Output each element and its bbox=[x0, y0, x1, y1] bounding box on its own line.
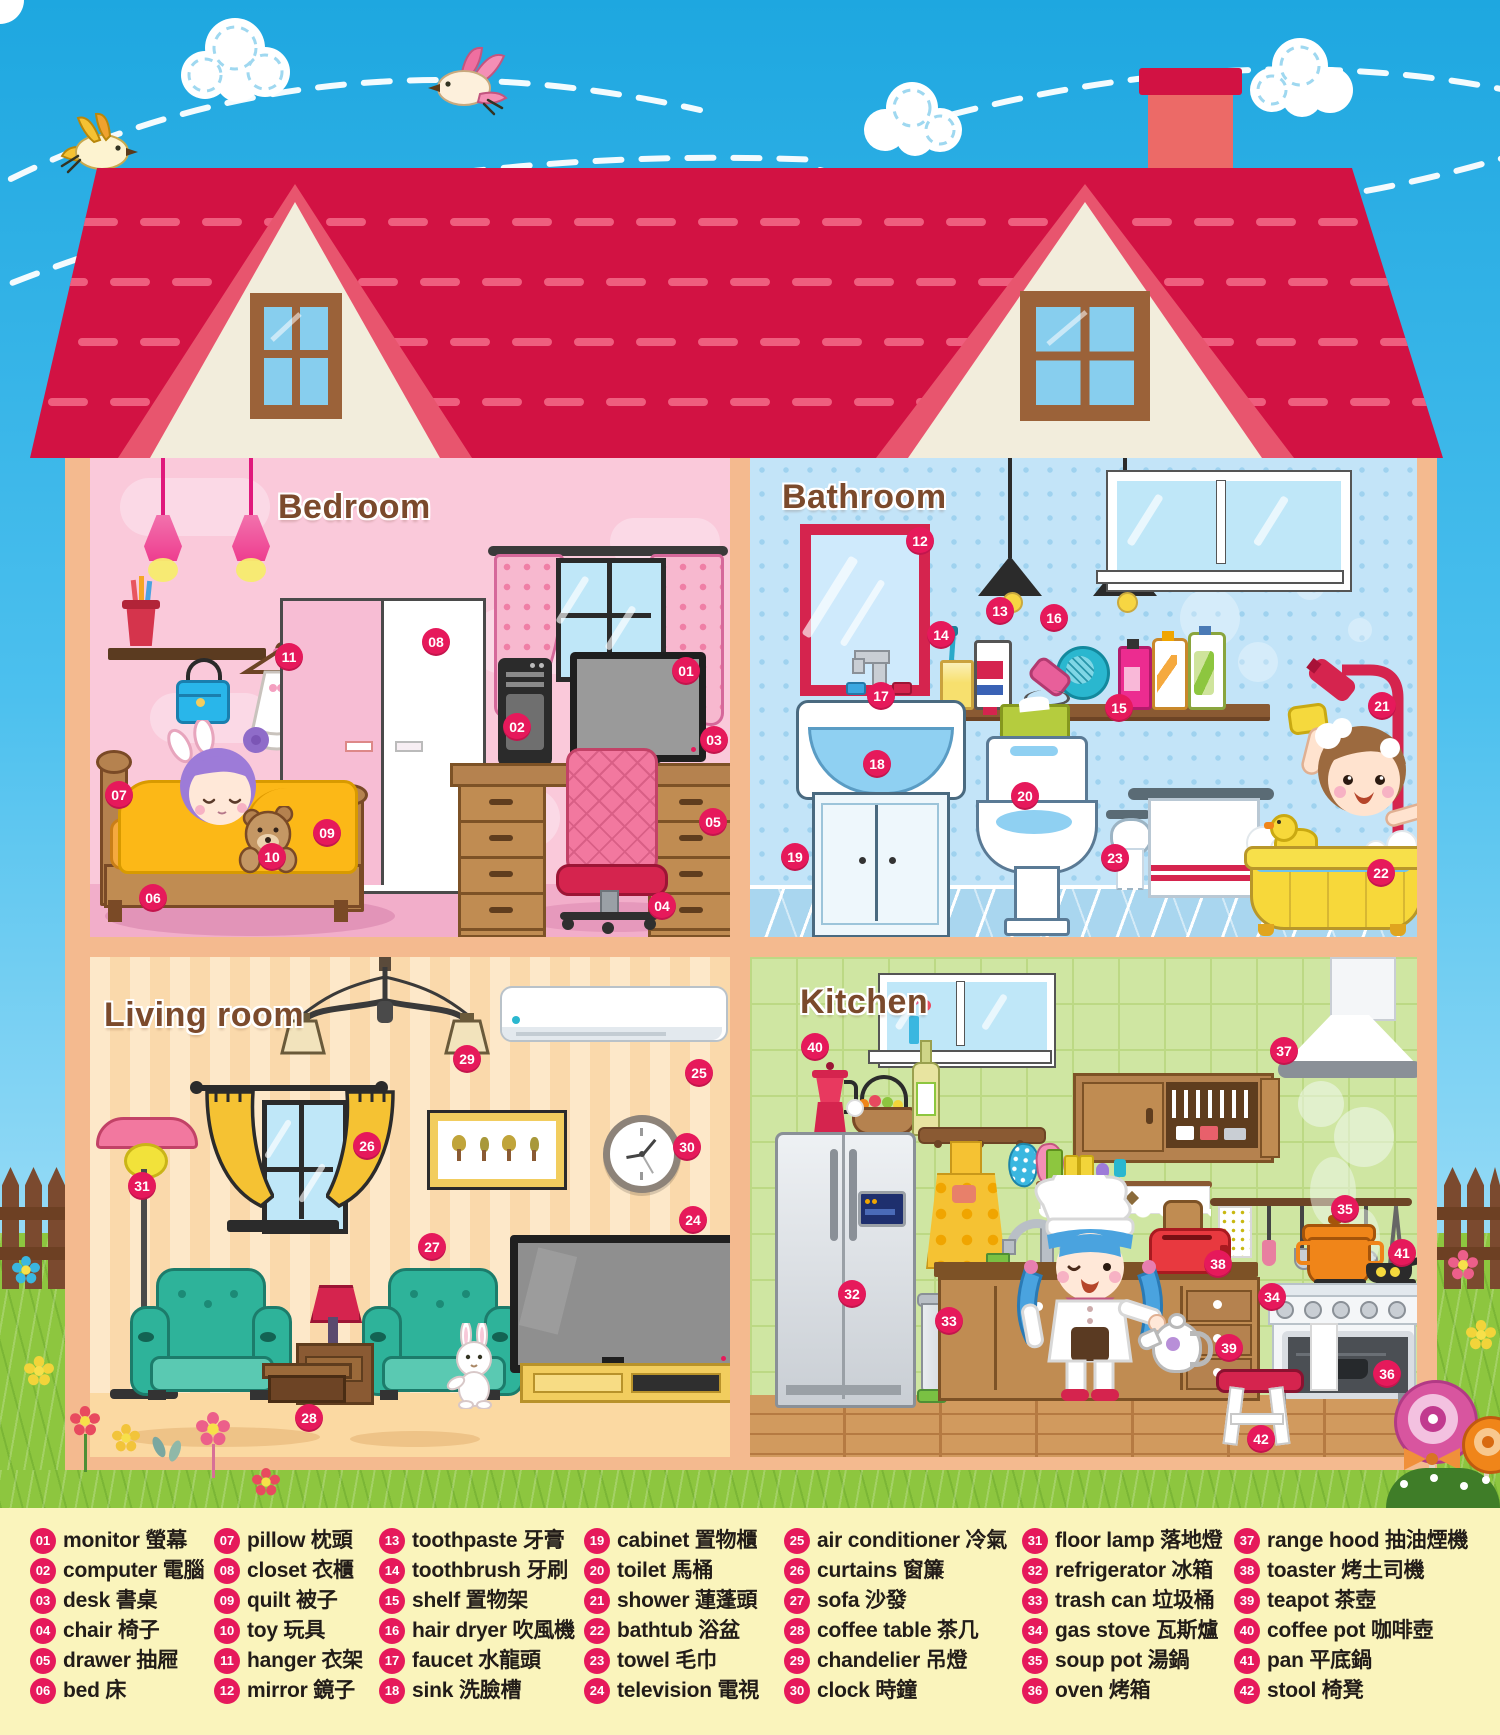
legend-item-31: 31floor lamp 落地燈 bbox=[1022, 1527, 1223, 1555]
legend-item-13: 13toothpaste 牙膏 bbox=[379, 1527, 565, 1555]
legend-item-11: 11hanger 衣架 bbox=[214, 1647, 363, 1675]
legend-number: 11 bbox=[214, 1648, 240, 1674]
bedroom-title: Bedroom bbox=[278, 488, 431, 527]
legend-item-07: 07pillow 枕頭 bbox=[214, 1527, 353, 1555]
legend-label: sink 洗臉槽 bbox=[412, 1679, 521, 1702]
legend-label: floor lamp 落地燈 bbox=[1055, 1529, 1223, 1552]
television bbox=[510, 1235, 730, 1373]
legend-item-01: 01monitor 螢幕 bbox=[30, 1527, 187, 1555]
legend-label: toilet 馬桶 bbox=[617, 1559, 713, 1582]
legend-item-32: 32refrigerator 冰箱 bbox=[1022, 1557, 1213, 1585]
legend-number: 10 bbox=[214, 1618, 240, 1644]
leaf-sprig bbox=[148, 1432, 188, 1472]
living-window-sill bbox=[227, 1220, 339, 1232]
legend-label: air conditioner 冷氣 bbox=[817, 1529, 1007, 1552]
spatula bbox=[1262, 1206, 1276, 1270]
legend-label: hanger 衣架 bbox=[247, 1649, 363, 1672]
legend-number: 20 bbox=[584, 1558, 610, 1584]
legend-number: 14 bbox=[379, 1558, 405, 1584]
legend-item-29: 29chandelier 吊燈 bbox=[784, 1647, 967, 1675]
legend-number: 35 bbox=[1022, 1648, 1048, 1674]
legend-number: 12 bbox=[214, 1678, 240, 1704]
room-bedroom bbox=[90, 458, 730, 937]
legend-label: chandelier 吊燈 bbox=[817, 1649, 967, 1672]
picture-frame bbox=[430, 1113, 564, 1187]
legend-item-20: 20toilet 馬桶 bbox=[584, 1557, 713, 1585]
flower-yellow bbox=[1466, 1320, 1496, 1350]
legend-label: coffee pot 咖啡壺 bbox=[1267, 1619, 1433, 1642]
legend-item-25: 25air conditioner 冷氣 bbox=[784, 1527, 1007, 1555]
legend-label: faucet 水龍頭 bbox=[412, 1649, 541, 1672]
stool bbox=[1216, 1369, 1298, 1451]
wall-clock bbox=[603, 1115, 681, 1193]
bubble bbox=[1238, 642, 1278, 682]
room-bathroom bbox=[750, 458, 1417, 937]
legend-label: computer 電腦 bbox=[63, 1559, 204, 1582]
teddy-bear-toy bbox=[238, 806, 304, 876]
teapot bbox=[1138, 1305, 1210, 1377]
office-chair bbox=[552, 748, 668, 930]
room-kitchen bbox=[750, 957, 1417, 1457]
legend-item-16: 16hair dryer 吹風機 bbox=[379, 1617, 575, 1645]
legend-label: gas stove 瓦斯爐 bbox=[1055, 1619, 1218, 1642]
legend-label: clock 時鐘 bbox=[817, 1679, 917, 1702]
legend-number: 27 bbox=[784, 1588, 810, 1614]
poster: Bedroom Bathroom Living room Kitchen 010… bbox=[0, 0, 1500, 1735]
legend-number: 22 bbox=[584, 1618, 610, 1644]
legend-number: 32 bbox=[1022, 1558, 1048, 1584]
legend-item-08: 08closet 衣櫃 bbox=[214, 1557, 354, 1585]
legend-item-12: 12mirror 鏡子 bbox=[214, 1677, 355, 1705]
legend-label: coffee table 茶几 bbox=[817, 1619, 979, 1642]
legend-number: 37 bbox=[1234, 1528, 1260, 1554]
legend-number: 26 bbox=[784, 1558, 810, 1584]
legend-label: toaster 烤土司機 bbox=[1267, 1559, 1424, 1582]
flower-red bbox=[252, 1468, 280, 1496]
air-conditioner bbox=[500, 986, 728, 1042]
legend-number: 02 bbox=[30, 1558, 56, 1584]
refrigerator bbox=[775, 1132, 916, 1408]
sky-roof-art bbox=[0, 0, 1500, 520]
legend-label: closet 衣櫃 bbox=[247, 1559, 354, 1582]
legend-number: 19 bbox=[584, 1528, 610, 1554]
fence-picket bbox=[48, 1167, 65, 1289]
flower-yellow bbox=[24, 1356, 54, 1386]
legend-label: bed 床 bbox=[63, 1679, 126, 1702]
legend-item-04: 04chair 椅子 bbox=[30, 1617, 159, 1645]
legend-label: monitor 螢幕 bbox=[63, 1529, 187, 1552]
legend-label: towel 毛巾 bbox=[617, 1649, 717, 1672]
cloud bbox=[0, 0, 290, 102]
legend-label: curtains 窗簾 bbox=[817, 1559, 944, 1582]
legend-number: 39 bbox=[1234, 1588, 1260, 1614]
pendant-lamp bbox=[134, 458, 194, 583]
flower-pink bbox=[196, 1412, 230, 1446]
toilet-paper-holder bbox=[1106, 810, 1150, 890]
legend-label: refrigerator 冰箱 bbox=[1055, 1559, 1213, 1582]
legend-number: 23 bbox=[584, 1648, 610, 1674]
legend-label: mirror 鏡子 bbox=[247, 1679, 355, 1702]
floor-shadow bbox=[350, 1431, 480, 1447]
curtain-right bbox=[326, 1089, 396, 1217]
steam bbox=[1298, 1081, 1344, 1127]
curtain-left bbox=[204, 1089, 274, 1217]
legend-number: 40 bbox=[1234, 1618, 1260, 1644]
legend-number: 28 bbox=[784, 1618, 810, 1644]
table-lamp bbox=[308, 1285, 358, 1345]
bubble bbox=[1348, 618, 1372, 642]
legend-item-38: 38toaster 烤土司機 bbox=[1234, 1557, 1424, 1585]
legend-label: range hood 抽油煙機 bbox=[1267, 1529, 1468, 1552]
legend-number: 24 bbox=[584, 1678, 610, 1704]
flower-stem bbox=[212, 1444, 215, 1478]
lotion-bottle-pink bbox=[1118, 646, 1152, 710]
legend-label: cabinet 置物櫃 bbox=[617, 1529, 757, 1552]
cloud bbox=[864, 82, 962, 156]
wine-bottle bbox=[912, 1040, 936, 1134]
legend-number: 34 bbox=[1022, 1618, 1048, 1644]
legend-panel: 01monitor 螢幕02computer 電腦03desk 書桌04chai… bbox=[0, 1508, 1500, 1735]
monitor bbox=[570, 652, 706, 762]
legend-item-03: 03desk 書桌 bbox=[30, 1587, 157, 1615]
legend-label: pan 平底鍋 bbox=[1267, 1649, 1372, 1672]
legend-label: shower 蓮蓬頭 bbox=[617, 1589, 757, 1612]
legend-number: 38 bbox=[1234, 1558, 1260, 1584]
legend-label: pillow 枕頭 bbox=[247, 1529, 353, 1552]
legend-label: toothbrush 牙刷 bbox=[412, 1559, 568, 1582]
legend-item-34: 34gas stove 瓦斯爐 bbox=[1022, 1617, 1218, 1645]
legend-number: 36 bbox=[1022, 1678, 1048, 1704]
legend-item-26: 26curtains 窗簾 bbox=[784, 1557, 944, 1585]
legend-number: 33 bbox=[1022, 1588, 1048, 1614]
legend-label: television 電視 bbox=[617, 1679, 759, 1702]
legend-label: desk 書桌 bbox=[63, 1589, 157, 1612]
tv-stand bbox=[520, 1363, 730, 1403]
cloud bbox=[1250, 38, 1353, 117]
legend-item-39: 39teapot 茶壺 bbox=[1234, 1587, 1376, 1615]
grass-front bbox=[0, 1470, 1500, 1508]
legend-number: 42 bbox=[1234, 1678, 1260, 1704]
legend-number: 01 bbox=[30, 1528, 56, 1554]
legend-label: chair 椅子 bbox=[63, 1619, 159, 1642]
legend-number: 09 bbox=[214, 1588, 240, 1614]
window-sill bbox=[1098, 572, 1342, 582]
legend-item-35: 35soup pot 湯鍋 bbox=[1022, 1647, 1189, 1675]
legend-label: sofa 沙發 bbox=[817, 1589, 907, 1612]
legend-number: 31 bbox=[1022, 1528, 1048, 1554]
legend-item-36: 36oven 烤箱 bbox=[1022, 1677, 1150, 1705]
legend-label: bathtub 浴盆 bbox=[617, 1619, 740, 1642]
legend-number: 03 bbox=[30, 1588, 56, 1614]
fence-picket bbox=[1490, 1167, 1500, 1289]
legend-item-02: 02computer 電腦 bbox=[30, 1557, 204, 1585]
pendant-lamp-black bbox=[978, 458, 1042, 613]
legend-item-37: 37range hood 抽油煙機 bbox=[1234, 1527, 1468, 1555]
coffee-pot bbox=[810, 1068, 854, 1134]
legend-number: 08 bbox=[214, 1558, 240, 1584]
computer-tower bbox=[498, 658, 552, 766]
legend-item-09: 09quilt 被子 bbox=[214, 1587, 338, 1615]
flower-blue bbox=[12, 1256, 40, 1284]
soup-pot bbox=[1302, 1215, 1376, 1285]
legend-item-28: 28coffee table 茶几 bbox=[784, 1617, 979, 1645]
toilet bbox=[970, 736, 1098, 932]
bird-yellow bbox=[62, 114, 138, 172]
legend-number: 06 bbox=[30, 1678, 56, 1704]
flower-stem bbox=[84, 1434, 87, 1472]
pencil-cup bbox=[120, 576, 160, 648]
desk-drawers-left bbox=[458, 784, 546, 937]
steam bbox=[1334, 1107, 1394, 1167]
bathtub bbox=[1244, 846, 1417, 936]
shampoo-bottle bbox=[1188, 632, 1226, 710]
chandelier bbox=[280, 957, 490, 1057]
legend-item-23: 23towel 毛巾 bbox=[584, 1647, 717, 1675]
fruit-basket bbox=[852, 1075, 910, 1133]
apron bbox=[926, 1141, 1004, 1269]
legend-number: 05 bbox=[30, 1648, 56, 1674]
legend-item-40: 40coffee pot 咖啡壺 bbox=[1234, 1617, 1433, 1645]
legend-item-15: 15shelf 置物架 bbox=[379, 1587, 528, 1615]
legend-item-21: 21shower 蓮蓬頭 bbox=[584, 1587, 757, 1615]
legend-number: 04 bbox=[30, 1618, 56, 1644]
toothbrush-cup bbox=[938, 626, 972, 704]
bath-faucet bbox=[846, 650, 910, 702]
legend-number: 29 bbox=[784, 1648, 810, 1674]
legend-number: 21 bbox=[584, 1588, 610, 1614]
fence-rail bbox=[1437, 1207, 1500, 1220]
coffee-table bbox=[262, 1363, 346, 1399]
legend-item-14: 14toothbrush 牙刷 bbox=[379, 1557, 568, 1585]
chimney bbox=[1139, 68, 1242, 174]
flower-yellow bbox=[112, 1424, 140, 1452]
kitchen-window-sill bbox=[870, 1052, 1050, 1062]
flower-red bbox=[70, 1406, 100, 1436]
legend-number: 30 bbox=[784, 1678, 810, 1704]
fence-rail bbox=[0, 1207, 66, 1220]
legend-number: 13 bbox=[379, 1528, 405, 1554]
legend-label: trash can 垃圾桶 bbox=[1055, 1589, 1215, 1612]
range-hood bbox=[1278, 957, 1417, 1081]
flower-pink bbox=[1448, 1250, 1478, 1280]
legend-number: 07 bbox=[214, 1528, 240, 1554]
legend-item-33: 33trash can 垃圾桶 bbox=[1022, 1587, 1215, 1615]
legend-item-05: 05drawer 抽屜 bbox=[30, 1647, 178, 1675]
toothpaste-tube bbox=[974, 640, 1012, 710]
legend-item-22: 22bathtub 浴盆 bbox=[584, 1617, 740, 1645]
legend-number: 41 bbox=[1234, 1648, 1260, 1674]
legend-item-42: 42stool 椅凳 bbox=[1234, 1677, 1363, 1705]
legend-number: 25 bbox=[784, 1528, 810, 1554]
legend-label: soup pot 湯鍋 bbox=[1055, 1649, 1189, 1672]
legend-item-41: 41pan 平底鍋 bbox=[1234, 1647, 1372, 1675]
legend-item-17: 17faucet 水龍頭 bbox=[379, 1647, 541, 1675]
legend-number: 15 bbox=[379, 1588, 405, 1614]
legend-label: hair dryer 吹風機 bbox=[412, 1619, 575, 1642]
bath-cabinet bbox=[812, 792, 950, 937]
kitchen-title: Kitchen bbox=[800, 983, 928, 1022]
handbag bbox=[176, 658, 224, 720]
legend-label: teapot 茶壺 bbox=[1267, 1589, 1376, 1612]
bathroom-title: Bathroom bbox=[782, 478, 947, 517]
bath-sink bbox=[796, 700, 966, 800]
legend-item-24: 24television 電視 bbox=[584, 1677, 759, 1705]
lotion-bottle-orange bbox=[1152, 638, 1188, 710]
bird-pink bbox=[428, 48, 506, 114]
legend-number: 17 bbox=[379, 1648, 405, 1674]
legend-label: toothpaste 牙膏 bbox=[412, 1529, 565, 1552]
legend-label: quilt 被子 bbox=[247, 1589, 338, 1612]
legend-number: 18 bbox=[379, 1678, 405, 1704]
legend-label: shelf 置物架 bbox=[412, 1589, 528, 1612]
rabbit bbox=[442, 1323, 508, 1409]
legend-item-18: 18sink 洗臉槽 bbox=[379, 1677, 521, 1705]
legend-number: 16 bbox=[379, 1618, 405, 1644]
legend-item-19: 19cabinet 置物櫃 bbox=[584, 1527, 757, 1555]
legend-item-06: 06bed 床 bbox=[30, 1677, 126, 1705]
legend-item-30: 30clock 時鐘 bbox=[784, 1677, 917, 1705]
legend-item-27: 27sofa 沙發 bbox=[784, 1587, 907, 1615]
legend-item-10: 10toy 玩具 bbox=[214, 1617, 325, 1645]
legend-label: drawer 抽屜 bbox=[63, 1649, 178, 1672]
legend-label: toy 玩具 bbox=[247, 1619, 325, 1642]
pendant-lamp bbox=[222, 458, 282, 583]
living-room-title: Living room bbox=[104, 996, 304, 1035]
legend-label: oven 烤箱 bbox=[1055, 1679, 1150, 1702]
legend-label: stool 椅凳 bbox=[1267, 1679, 1363, 1702]
